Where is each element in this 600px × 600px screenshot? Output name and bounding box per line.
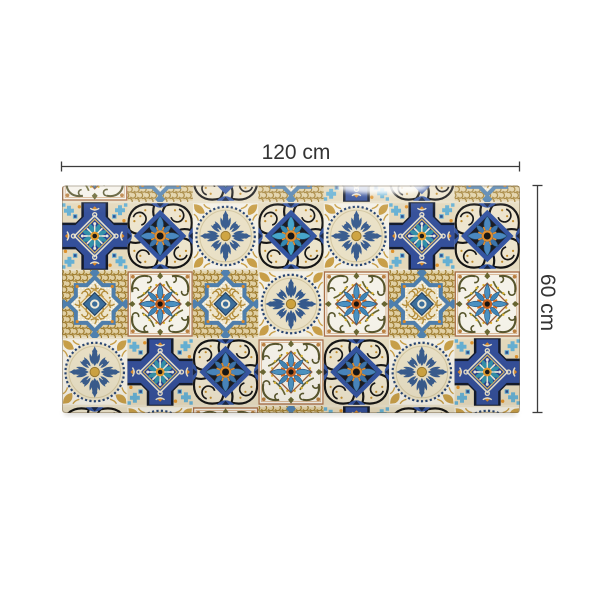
- svg-text:120 cm: 120 cm: [262, 141, 331, 164]
- svg-text:60 cm: 60 cm: [536, 274, 559, 331]
